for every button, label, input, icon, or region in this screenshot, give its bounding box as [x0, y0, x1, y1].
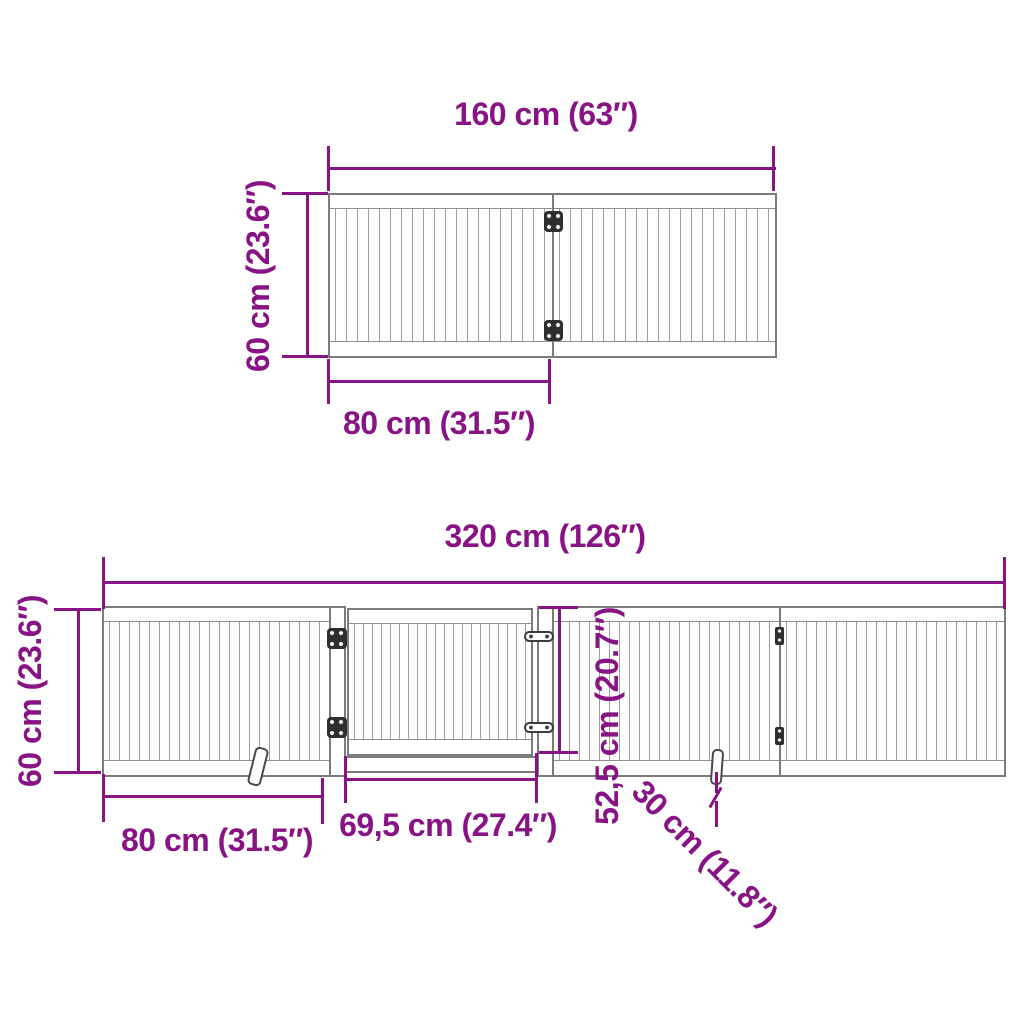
hinge-icon — [544, 320, 563, 341]
gate-panel-1 — [102, 606, 331, 777]
door-latch-pin — [524, 722, 554, 733]
dim-line — [328, 380, 550, 383]
gate-panel-right — [552, 193, 777, 358]
dim-tick — [327, 359, 330, 404]
bottom-rail — [104, 760, 329, 775]
gate-panel-3 — [552, 606, 781, 777]
door-hinge-icon — [327, 717, 347, 738]
dim-label-top-total-width: 160 cm (63″) — [396, 95, 696, 133]
dim-label-bottom-total-width: 320 cm (126″) — [395, 517, 695, 555]
dim-tick — [102, 774, 105, 822]
dim-line — [77, 609, 80, 774]
bottom-rail — [781, 760, 1004, 775]
dim-line — [306, 193, 309, 358]
bottom-rail — [330, 341, 552, 356]
dim-tick — [1003, 557, 1006, 609]
top-rail — [554, 195, 775, 209]
gate-door — [347, 608, 533, 756]
slats — [559, 209, 770, 341]
dim-tick — [54, 608, 101, 611]
dim-tick — [54, 771, 101, 774]
top-rail — [349, 610, 531, 624]
slats — [335, 209, 547, 341]
door-hinge-icon — [327, 628, 347, 649]
door-latch-pin — [524, 631, 554, 642]
dim-tick — [344, 756, 347, 803]
gate-panel-4 — [779, 606, 1006, 777]
gate-panel-left — [328, 193, 554, 358]
dim-tick — [535, 753, 538, 803]
dim-label-top-panel-width: 80 cm (31.5″) — [289, 404, 589, 442]
dim-line — [345, 778, 537, 781]
dim-line — [558, 607, 561, 754]
dim-label-door-height: 52,5 cm (20.7″) — [588, 591, 626, 841]
dim-tick — [102, 557, 105, 609]
dim-label-bottom-height: 60 cm (23.6″) — [11, 591, 49, 791]
dim-label-foot-depth: 30 cm (11.8″) — [600, 748, 811, 959]
slats — [354, 624, 526, 739]
dim-line — [103, 795, 323, 798]
hinge-icon — [544, 211, 563, 232]
top-rail — [330, 195, 552, 209]
dim-tick — [282, 355, 328, 358]
dim-line — [328, 167, 776, 170]
dimension-diagram: 160 cm (63″) 60 cm (23.6″) 80 cm (31.5″) — [0, 0, 1024, 1024]
top-rail — [781, 608, 1004, 622]
bottom-rail — [349, 739, 531, 754]
dim-tick — [548, 359, 551, 404]
dim-tick — [539, 606, 578, 609]
slats — [109, 622, 324, 760]
dim-line — [103, 581, 1005, 584]
dim-tick — [539, 751, 578, 754]
panel-hinge-icon — [775, 727, 784, 745]
top-rail — [104, 608, 329, 622]
bottom-rail — [554, 341, 775, 356]
panel-hinge-icon — [775, 627, 784, 645]
dim-label-top-height: 60 cm (23.6″) — [239, 176, 277, 376]
dim-tick — [772, 146, 775, 191]
dim-label-door-width: 69,5 cm (27.4″) — [298, 806, 598, 844]
dim-tick — [327, 146, 330, 191]
door-bottom-rail — [346, 756, 538, 773]
slats — [786, 622, 999, 760]
dim-tick — [282, 192, 328, 195]
